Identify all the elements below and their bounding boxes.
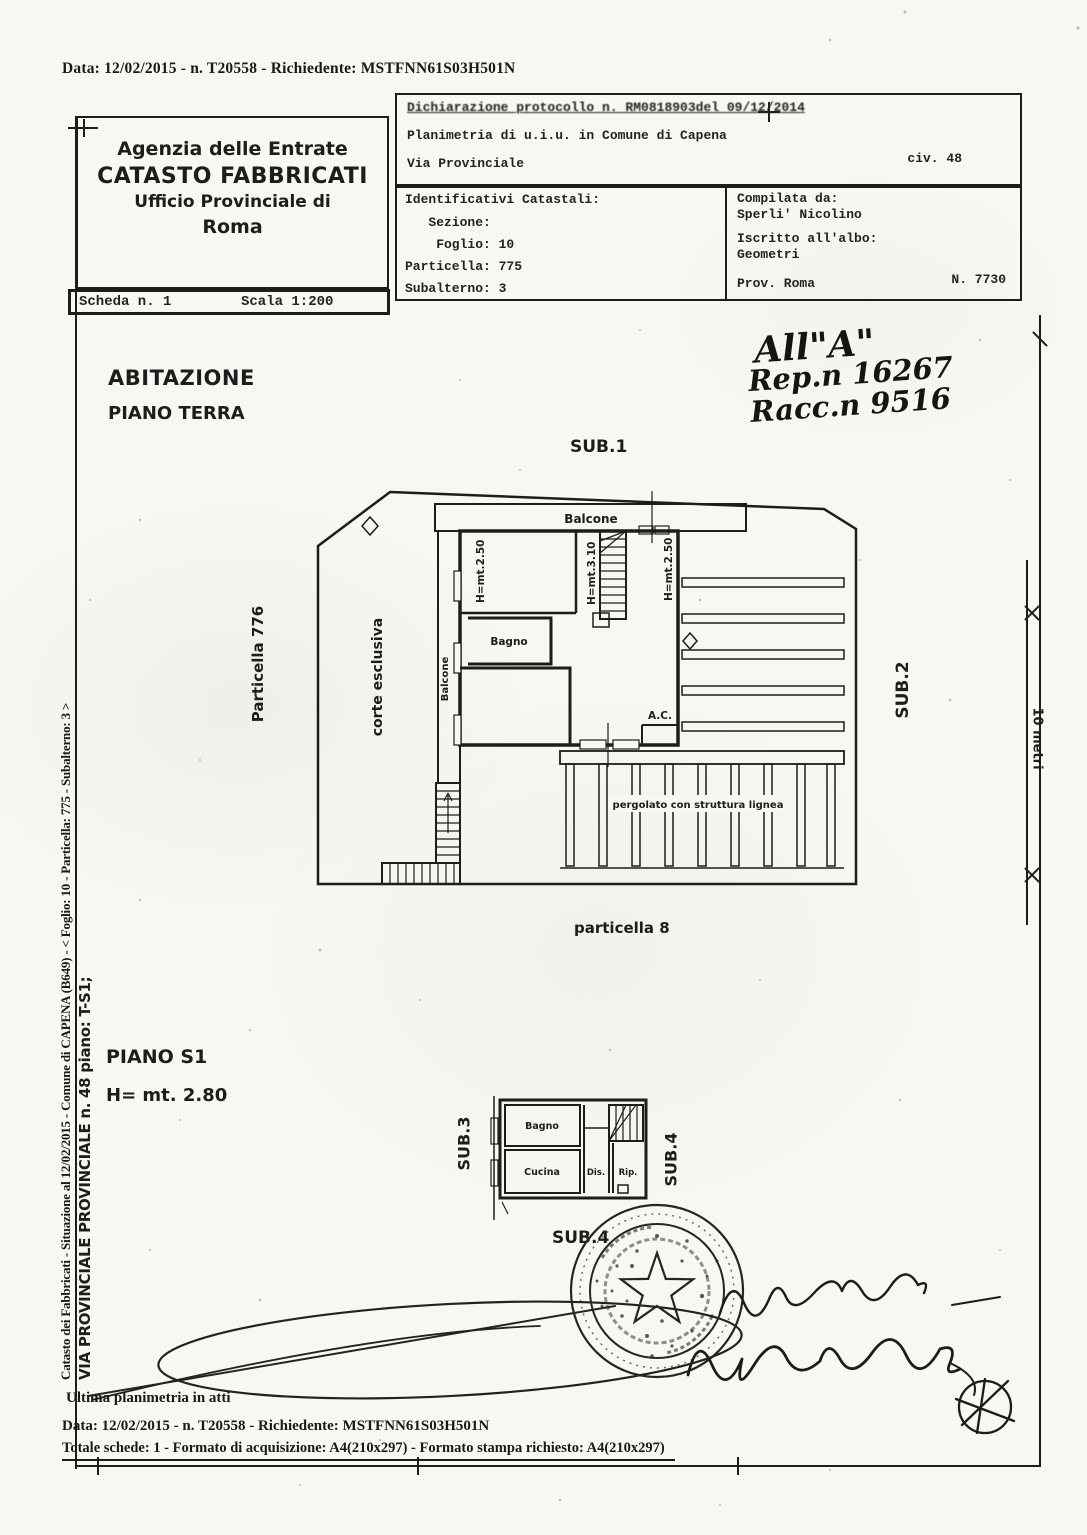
scala-label: Scala 1:200	[241, 294, 333, 310]
label-balcone-left: Balcone	[440, 657, 451, 702]
protocol-planimetria: Planimetria di u.i.u. in Comune di Capen…	[407, 128, 727, 143]
scheda-box: Scheda n. 1 Scala 1:200	[68, 289, 390, 315]
title-h-s1: H= mt. 2.80	[106, 1085, 227, 1106]
label-h-room-left: H=mt.2.50	[475, 540, 487, 603]
label-cucina-s1: Cucina	[524, 1167, 560, 1178]
signatures	[600, 1245, 1070, 1455]
label-rip: Rip.	[619, 1168, 638, 1178]
albo-label: Iscritto all'albo:	[737, 231, 877, 246]
protocol-declaration: Dichiarazione protocollo n. RM0818903del…	[407, 100, 805, 115]
compilata-label: Compilata da:	[737, 191, 838, 206]
identifiers-box: Identificativi Catastali: Sezione: Fogli…	[395, 186, 1022, 301]
catastali-subalterno: Subalterno: 3	[405, 281, 506, 296]
signature-1	[720, 1274, 926, 1315]
margin-via-line: VIA PROVINCIALE PROVINCIALE n. 48 piano:…	[76, 977, 94, 1380]
protocol-box: Dichiarazione protocollo n. RM0818903del…	[395, 93, 1022, 186]
title-piano-s1: PIANO S1	[106, 1046, 207, 1068]
footer-ultima: Ultima planimetria in atti	[66, 1390, 231, 1407]
catastali-particella: Particella: 775	[405, 259, 522, 274]
scanned-cadastral-document: Data: 12/02/2015 - n. T20558 - Richieden…	[0, 0, 1087, 1535]
signature-2	[688, 1339, 960, 1379]
signature-tail	[950, 1363, 975, 1395]
label-particella-776: Particella 776	[249, 589, 267, 739]
north-diamond-icon	[362, 517, 378, 535]
agency-box: Agenzia delle Entrate CATASTO FABBRICATI…	[76, 116, 389, 289]
catastali-foglio: Foglio: 10	[405, 237, 514, 252]
label-h-room-right: H=mt.2.50	[663, 538, 675, 601]
label-dis: Dis.	[587, 1168, 605, 1178]
compilata-name: Sperli' Nicolino	[737, 207, 862, 222]
label-balcone-top: Balcone	[564, 512, 617, 526]
prov-value: Prov. Roma	[737, 276, 815, 291]
signature-underline	[952, 1297, 1000, 1305]
top-request-line: Data: 12/02/2015 - n. T20558 - Richieden…	[62, 60, 515, 78]
identifiers-right-column: Compilata da: Sperli' Nicolino Iscritto …	[727, 188, 1020, 299]
agency-line4: Roma	[78, 216, 387, 238]
signature-flourish	[956, 1379, 1014, 1433]
footer-totale-line: Totale schede: 1 - Formato di acquisizio…	[62, 1440, 675, 1461]
catastali-sezione: Sezione:	[405, 215, 491, 230]
label-particella-8: particella 8	[574, 919, 670, 937]
scale-bar-label: 10 metri	[1030, 694, 1045, 784]
label-bagno-s1: Bagno	[525, 1121, 559, 1132]
frame-bottom	[75, 1465, 1041, 1467]
identifiers-left-column: Identificativi Catastali: Sezione: Fogli…	[397, 188, 727, 299]
label-pergolato: pergolato con struttura lignea	[613, 800, 784, 811]
title-piano-terra: PIANO TERRA	[108, 403, 245, 424]
pergola-right-slats	[682, 578, 844, 731]
label-h-stairs: H=mt.3.10	[586, 542, 598, 605]
footer-data-line: Data: 12/02/2015 - n. T20558 - Richieden…	[62, 1418, 489, 1435]
label-ac: A.C.	[648, 710, 672, 722]
margin-catasto-line: Catasto dei Fabbricati - Situazione al 1…	[58, 703, 74, 1380]
external-stairs	[382, 783, 460, 884]
stairs-basement	[609, 1105, 643, 1141]
ac-nook-walls	[642, 725, 678, 745]
label-bagno: Bagno	[490, 636, 527, 648]
protocol-civ: civ. 48	[907, 151, 962, 166]
door-diamond-icon	[683, 633, 697, 649]
label-sub2: SUB.2	[893, 645, 913, 735]
protocol-via: Via Provinciale	[407, 156, 524, 171]
ground-floor-plan: Balcone Balcone H=mt.2.50 H=mt.3.10 H=mt…	[308, 483, 864, 895]
albo-value: Geometri	[737, 247, 799, 262]
label-sub1: SUB.1	[570, 437, 627, 457]
registration-mark	[737, 1457, 739, 1475]
albo-number: N. 7730	[951, 272, 1006, 287]
title-abitazione: ABITAZIONE	[108, 366, 255, 390]
agency-line3: Ufficio Provinciale di	[78, 192, 387, 212]
catastali-title: Identificativi Catastali:	[405, 192, 600, 207]
agency-line2: CATASTO FABBRICATI	[78, 164, 387, 189]
scheda-label: Scheda n. 1	[79, 294, 171, 310]
handwritten-annotation: All"A" Rep.n 16267 Racc.n 9516	[745, 319, 956, 427]
label-sub3: SUB.3	[455, 1099, 474, 1189]
agency-line1: Agenzia delle Entrate	[78, 138, 387, 160]
